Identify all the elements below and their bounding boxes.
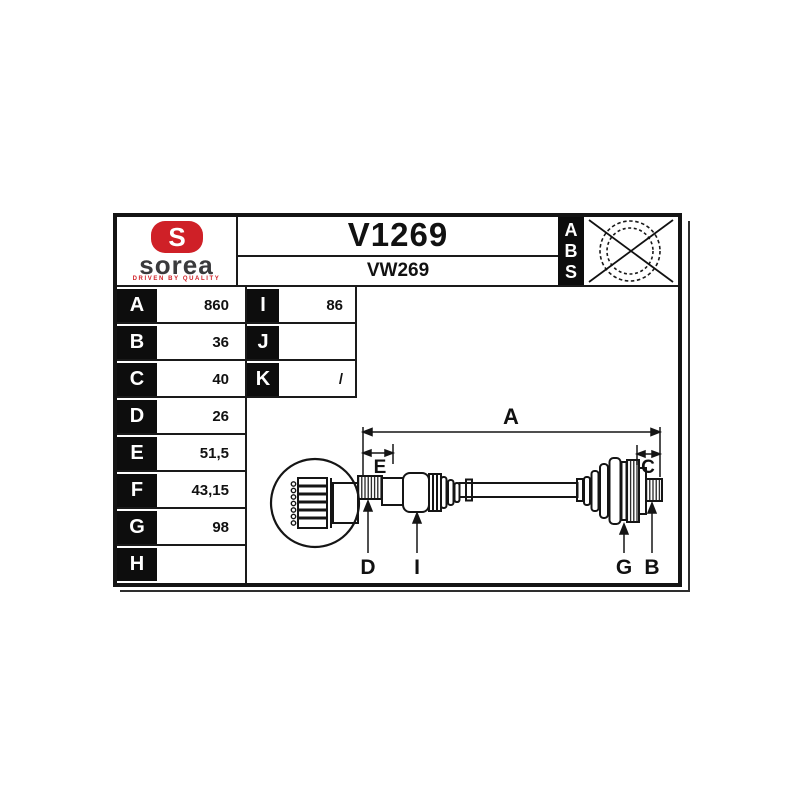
- dim-label-a: A: [503, 404, 519, 429]
- spec-key: C: [117, 363, 157, 396]
- spec-value: 36: [157, 324, 237, 361]
- inner-cv-joint: [403, 473, 429, 512]
- spec-key: E: [117, 437, 157, 470]
- reference-number: VW269: [238, 257, 558, 285]
- abs-bar: A B S: [558, 217, 584, 285]
- abs-tone-ring: [627, 460, 639, 522]
- spec-value: 98: [157, 509, 237, 546]
- dim-label-c: C: [641, 457, 655, 478]
- spline-detail-circle: [271, 459, 359, 547]
- spec-value: 43,15: [157, 472, 237, 509]
- part-number: V1269: [238, 215, 558, 255]
- spec-value: 860: [157, 287, 237, 324]
- abs-letter: B: [565, 242, 578, 260]
- outer-boot: [610, 458, 621, 524]
- callout-arrows: [364, 501, 656, 553]
- driveshaft: [358, 458, 662, 524]
- callout-label-d: D: [360, 556, 375, 579]
- spec-value: 26: [157, 398, 237, 435]
- spec-key: G: [117, 511, 157, 544]
- spec-key: A: [117, 289, 157, 322]
- abs-letter: A: [565, 221, 578, 239]
- callout-label-b: B: [644, 556, 659, 579]
- dim-label-e: E: [374, 457, 387, 478]
- right-spline: [646, 479, 662, 501]
- abs-letter: S: [565, 263, 577, 281]
- spec-key: H: [117, 548, 157, 581]
- shaft-bar: [460, 483, 578, 497]
- frame-shadow-bottom: [120, 590, 690, 592]
- spec-key: D: [117, 400, 157, 433]
- callout-label-g: G: [616, 556, 632, 579]
- abs-ring-crossed-icon: [584, 217, 678, 285]
- spec-value: 51,5: [157, 435, 237, 472]
- frame-shadow-right: [688, 221, 690, 592]
- driveshaft-diagram: A E C D I G B: [245, 287, 682, 584]
- left-spline: [358, 476, 382, 499]
- spec-value: [157, 546, 237, 583]
- spec-key: B: [117, 326, 157, 359]
- brand-tagline: DRIVEN BY QUALITY: [133, 276, 221, 283]
- spec-key: F: [117, 474, 157, 507]
- dimension-a: [363, 427, 660, 477]
- callout-label-i: I: [414, 556, 420, 579]
- datasheet-page: S sorea DRIVEN BY QUALITY V1269 VW269 A …: [0, 0, 800, 800]
- emblem-letter: S: [168, 222, 185, 252]
- sorea-emblem-icon: S: [150, 220, 204, 254]
- brand-logo: S sorea DRIVEN BY QUALITY: [117, 217, 236, 285]
- spec-value: 40: [157, 361, 237, 398]
- brand-wordmark: sorea: [139, 254, 213, 276]
